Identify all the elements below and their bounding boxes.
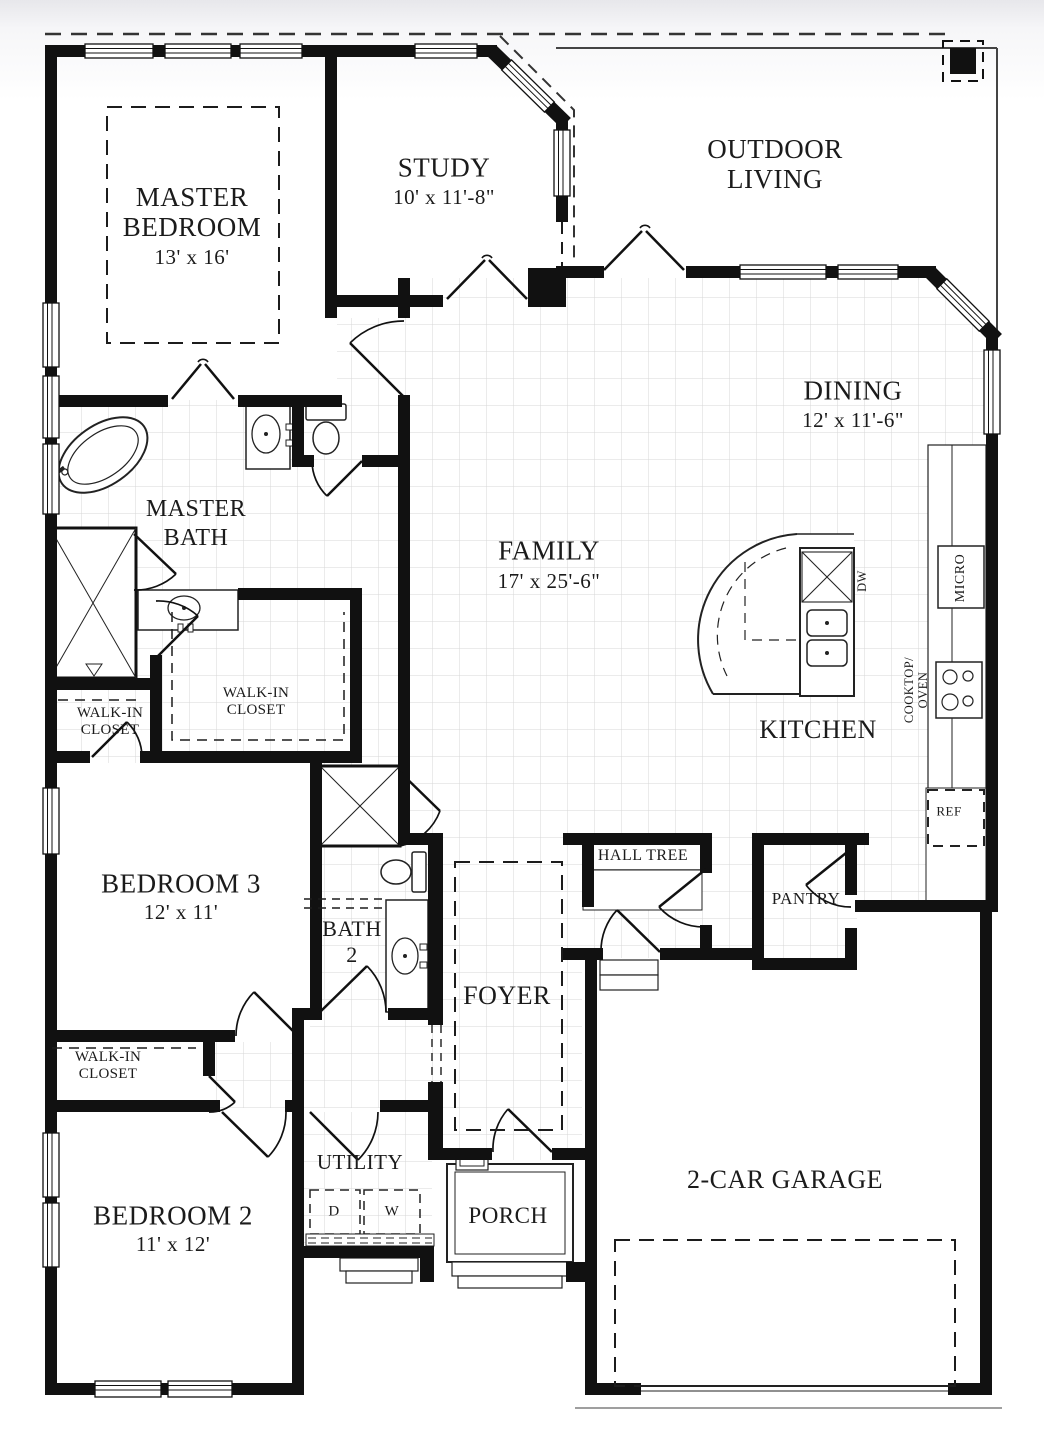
dishwasher-label: DW bbox=[855, 570, 869, 592]
bath2-shower-fixture bbox=[320, 766, 400, 846]
washer-label: W bbox=[385, 1203, 400, 1220]
cooktop-label: COOKTOP/ OVEN bbox=[902, 657, 930, 723]
room-label-master-bath: MASTER BATH bbox=[146, 495, 246, 553]
room-label-bedroom3: BEDROOM 3 bbox=[101, 868, 261, 899]
room-label-bedroom2-closet: WALK-IN CLOSET bbox=[75, 1049, 141, 1083]
master-shower-fixture bbox=[50, 528, 136, 678]
room-dims-study: 10' x 11'-8" bbox=[393, 185, 495, 209]
room-label-outdoor-living: OUTDOOR LIVING bbox=[707, 134, 843, 194]
room-label-family: FAMILY bbox=[498, 535, 600, 566]
room-label-kitchen: KITCHEN bbox=[759, 715, 877, 745]
room-dims-family: 17' x 25'-6" bbox=[498, 569, 601, 593]
bath2-vanity-sink bbox=[386, 900, 428, 1012]
room-dims-bedroom3: 12' x 11' bbox=[144, 900, 218, 924]
room-dims-dining: 12' x 11'-6" bbox=[802, 408, 904, 432]
room-label-porch: PORCH bbox=[468, 1203, 547, 1229]
master-vanity1-sink bbox=[246, 403, 295, 469]
room-label-study: STUDY bbox=[398, 152, 491, 183]
room-label-small-closet: WALK-IN CLOSET bbox=[77, 705, 143, 739]
room-label-master-bedroom: MASTER BEDROOM bbox=[123, 182, 262, 242]
microwave-label: MICRO bbox=[953, 554, 969, 602]
room-label-master-closet: WALK-IN CLOSET bbox=[223, 685, 289, 719]
cooktop-icon bbox=[936, 662, 982, 718]
refrigerator-label: REF bbox=[936, 805, 961, 820]
room-label-hall-tree: HALL TREE bbox=[598, 847, 688, 865]
room-label-bath2: BATH 2 bbox=[322, 916, 381, 968]
room-label-pantry: PANTRY bbox=[772, 889, 841, 909]
room-label-foyer: FOYER bbox=[463, 981, 551, 1011]
room-label-bedroom2: BEDROOM 2 bbox=[93, 1200, 253, 1231]
room-label-utility: UTILITY bbox=[317, 1150, 403, 1174]
room-label-dining: DINING bbox=[804, 375, 903, 406]
dryer-label: D bbox=[328, 1203, 339, 1220]
room-label-garage: 2-CAR GARAGE bbox=[687, 1165, 883, 1195]
floor-plan: MASTER BEDROOM 13' x 16' STUDY 10' x 11'… bbox=[0, 0, 1044, 1434]
room-dims-master-bedroom: 13' x 16' bbox=[154, 245, 229, 269]
room-dims-bedroom2: 11' x 12' bbox=[136, 1232, 210, 1256]
